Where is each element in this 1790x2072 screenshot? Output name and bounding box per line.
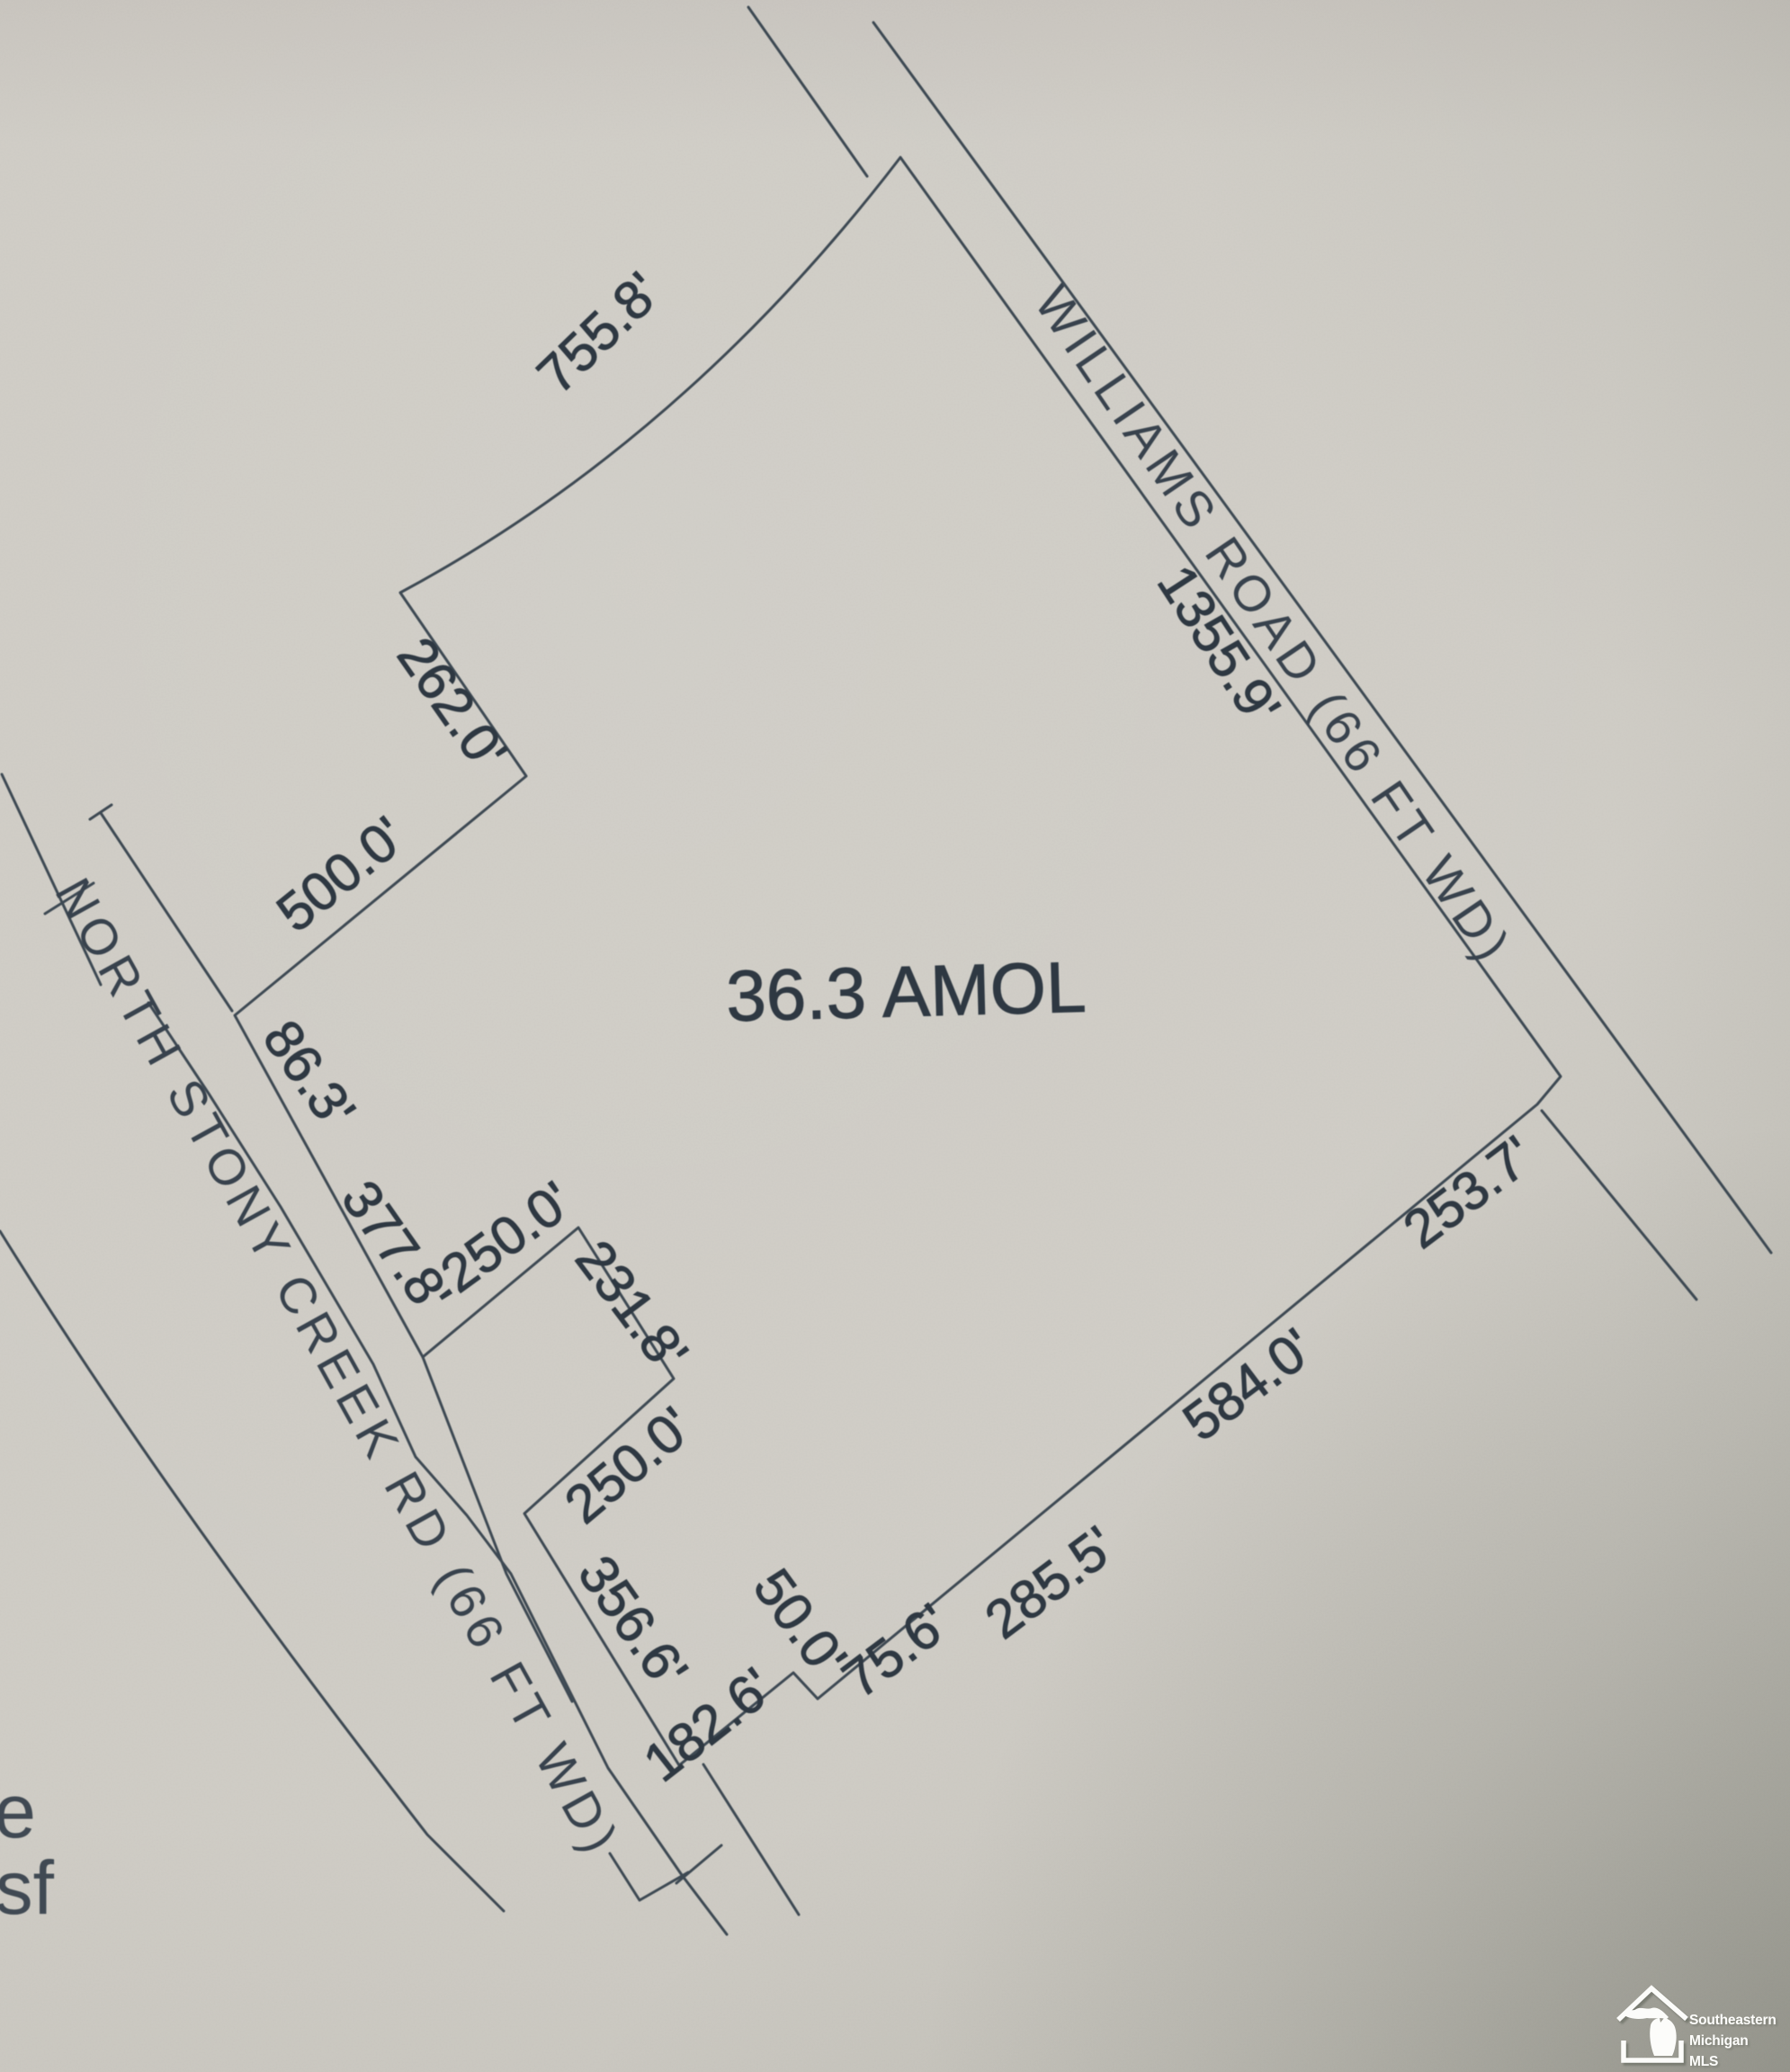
svg-text:Southeastern: Southeastern — [1689, 2013, 1777, 2028]
svg-text:Michigan: Michigan — [1689, 2033, 1749, 2049]
svg-text:e: e — [0, 1769, 36, 1853]
svg-text:36.3 AMOL: 36.3 AMOL — [725, 947, 1087, 1036]
svg-text:MLS: MLS — [1689, 2054, 1718, 2069]
svg-text:sf: sf — [0, 1845, 55, 1930]
